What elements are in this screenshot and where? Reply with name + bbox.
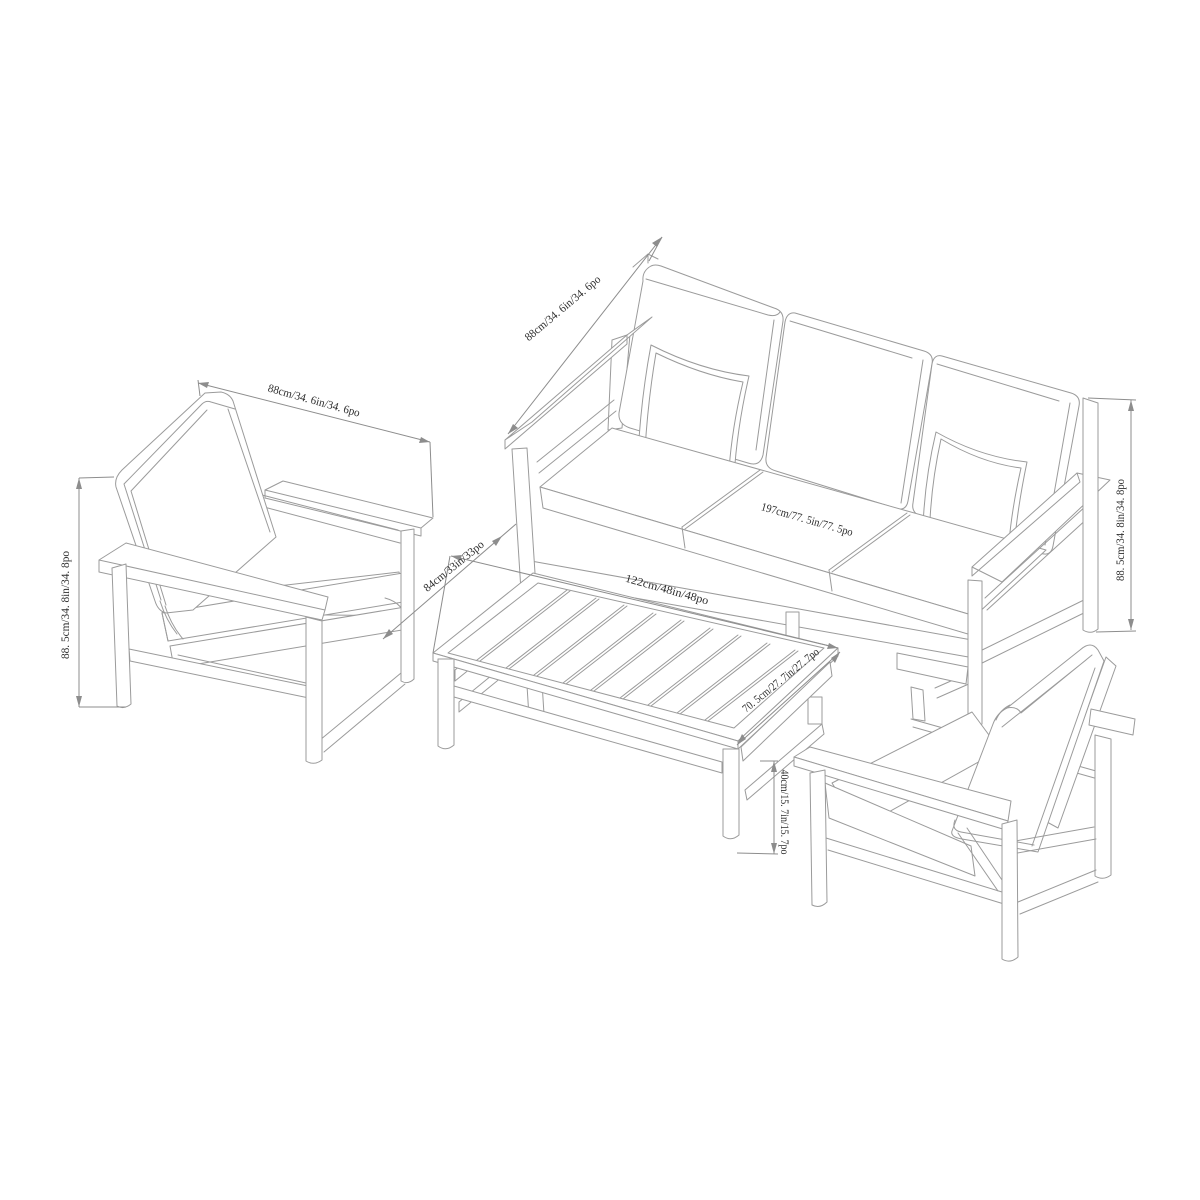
svg-text:88. 5cm/34. 8in/34. 8po: 88. 5cm/34. 8in/34. 8po xyxy=(60,551,72,659)
svg-text:40cm/15. 7in/15. 7po: 40cm/15. 7in/15. 7po xyxy=(778,770,790,855)
svg-text:88. 5cm/34. 8in/34. 8po: 88. 5cm/34. 8in/34. 8po xyxy=(1115,479,1127,581)
